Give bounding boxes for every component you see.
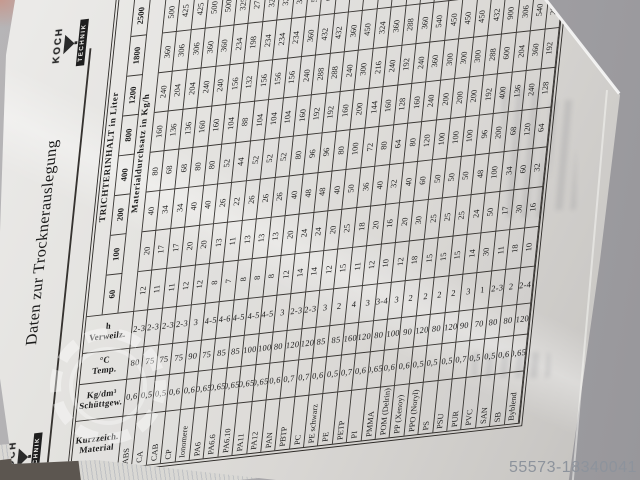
technik-logo-text: TECHNIK [76,19,89,66]
koch-technik-logo: KOCH TECHNIK [50,16,89,72]
dwell-time-cell: 2-4 [517,266,535,304]
temperature-cell: 120 [514,302,532,335]
throughput-cell: 10 [521,226,539,267]
throughput-cell: 64 [533,107,551,148]
funnel-stem-icon [74,42,77,45]
throughput-cell: 32 [529,146,547,187]
photo-of-datasheet: KOCH TECHNIK KOCH TECHNIK Daten zur Troc… [0,0,640,480]
throughput-cell: 16 [525,186,543,227]
throughput-cell: 192 [541,27,559,68]
listing-id-watermark: 55573-18340041 [509,459,637,477]
density-cell: 0,65 [510,333,528,371]
funnel-stem-icon [28,455,31,458]
throughput-cell: 128 [537,67,555,108]
